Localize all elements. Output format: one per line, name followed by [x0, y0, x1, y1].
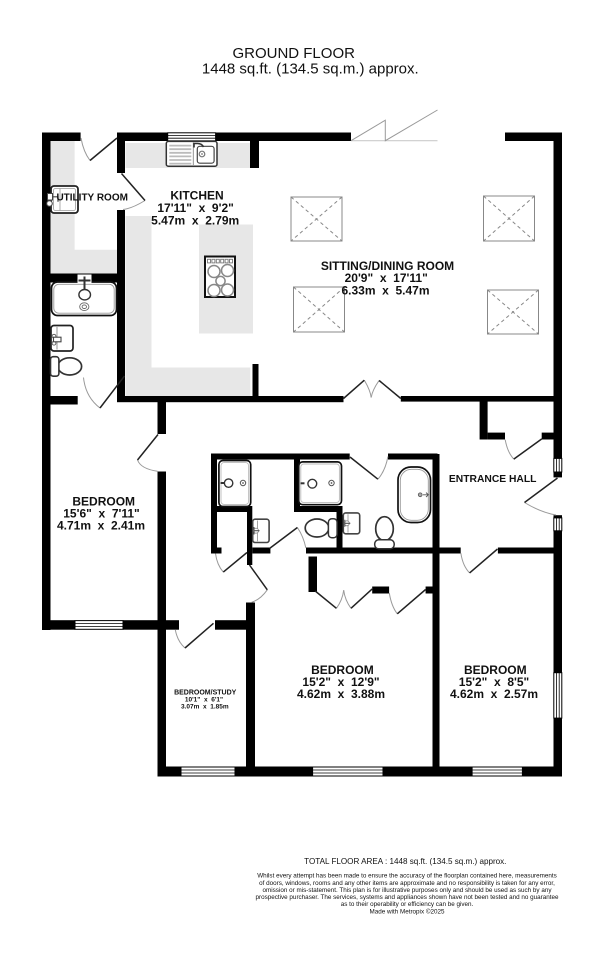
svg-text:Made with Metropix ©2025: Made with Metropix ©2025: [370, 907, 445, 915]
svg-text:1448 sq.ft. (134.5 sq.m.) appr: 1448 sq.ft. (134.5 sq.m.) approx.: [202, 60, 419, 77]
svg-text:3.07m x 1.85m: 3.07m x 1.85m: [181, 703, 229, 710]
svg-text:TOTAL FLOOR AREA : 1448 sq.ft.: TOTAL FLOOR AREA : 1448 sq.ft. (134.5 sq…: [304, 857, 506, 866]
svg-text:6.33m x 5.47m: 6.33m x 5.47m: [341, 283, 429, 297]
svg-text:4.71m x 2.41m: 4.71m x 2.41m: [57, 519, 145, 533]
svg-text:ENTRANCE HALL: ENTRANCE HALL: [449, 474, 537, 485]
svg-text:of doors, windows, rooms and a: of doors, windows, rooms and any other i…: [259, 880, 555, 887]
svg-text:omission or mis-statement. Thi: omission or mis-statement. This plan is …: [263, 887, 553, 894]
svg-text:10'1" x 6'1": 10'1" x 6'1": [185, 696, 223, 703]
svg-text:4.62m x 2.57m: 4.62m x 2.57m: [450, 687, 538, 701]
svg-text:5.47m x 2.79m: 5.47m x 2.79m: [151, 214, 239, 228]
svg-text:Whilst every attempt has been: Whilst every attempt has been made to en…: [257, 873, 557, 880]
svg-text:4.62m x 3.88m: 4.62m x 3.88m: [297, 687, 385, 701]
svg-text:as to their operability or eff: as to their operability or efficiency ca…: [341, 901, 474, 908]
svg-text:prospective purchaser. The ser: prospective purchaser. The services, sys…: [255, 894, 559, 901]
svg-text:UTILITY ROOM: UTILITY ROOM: [56, 192, 127, 203]
